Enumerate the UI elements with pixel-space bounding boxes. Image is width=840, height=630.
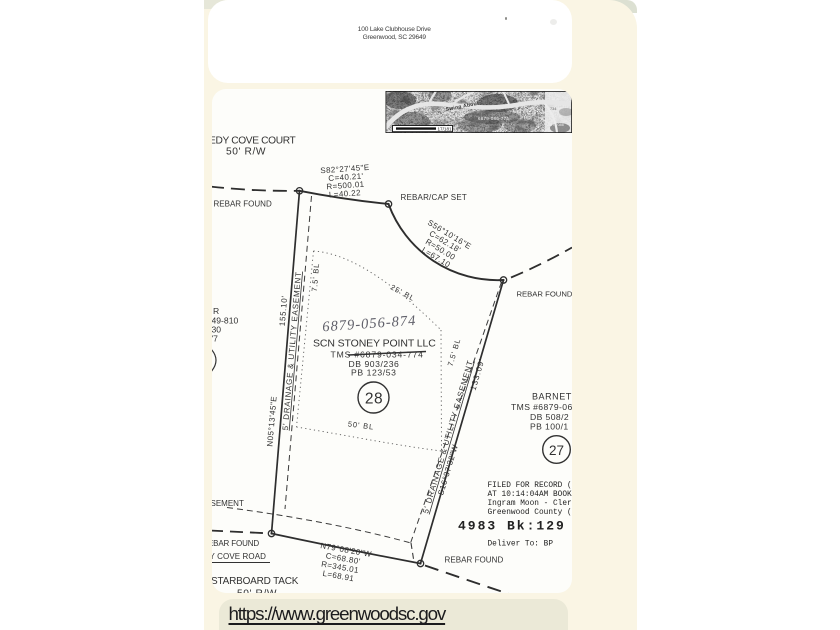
svg-text:TMS #6879-06: TMS #6879-06: [511, 402, 572, 412]
svg-text:REBAR/CAP SET: REBAR/CAP SET: [401, 193, 467, 202]
svg-text:27: 27: [549, 443, 564, 458]
svg-text:155.10': 155.10': [278, 295, 290, 327]
svg-text:50' BL: 50' BL: [347, 419, 374, 431]
svg-text:17/181: 17/181: [438, 127, 452, 132]
svg-text:N05°13'45"E: N05°13'45"E: [265, 396, 278, 447]
svg-text:7.5' BL: 7.5' BL: [446, 337, 463, 367]
svg-text:5' DRAINAGE & UTILITY EASEMENT: 5' DRAINAGE & UTILITY EASEMENT: [281, 271, 303, 431]
svg-text:SCN STONEY POINT LLC: SCN STONEY POINT LLC: [313, 338, 436, 350]
svg-text:'7: '7: [212, 334, 218, 344]
svg-text:7.5' BL: 7.5' BL: [310, 263, 321, 292]
svg-text:BARNETT: BARNETT: [532, 392, 572, 402]
svg-text:FILED FOR RECORD (: FILED FOR RECORD (: [488, 482, 572, 490]
svg-text:EBAR FOUND: EBAR FOUND: [212, 539, 259, 548]
svg-text:141 ST: 141 ST: [510, 93, 523, 97]
svg-text:REBAR FOUND: REBAR FOUND: [445, 556, 504, 565]
svg-text:25' BL: 25' BL: [389, 283, 417, 303]
svg-text:6879 086: 6879 086: [548, 123, 564, 127]
svg-text:R: R: [213, 306, 219, 316]
svg-text:Ingram Moon - Cler: Ingram Moon - Cler: [488, 500, 572, 508]
svg-text:6879-086-774: 6879-086-774: [478, 116, 509, 121]
svg-text:Greenwood County (: Greenwood County (: [488, 509, 572, 517]
svg-text:50' R/W: 50' R/W: [237, 589, 277, 594]
svg-text:SEMENT: SEMENT: [212, 499, 244, 508]
svg-text:AT 10:14:04AM BOOK: AT 10:14:04AM BOOK: [488, 491, 573, 499]
svg-text:734: 734: [550, 107, 556, 111]
svg-text:PB 100/1: PB 100/1: [530, 422, 569, 432]
svg-text:REBAR FOUND: REBAR FOUND: [517, 290, 573, 299]
svg-text:STARBOARD TACK: STARBOARD TACK: [212, 576, 299, 587]
svg-text:REBAR FOUND: REBAR FOUND: [214, 200, 272, 209]
svg-text:Y COVE ROAD: Y COVE ROAD: [212, 552, 266, 561]
svg-text:PB 123/53: PB 123/53: [351, 368, 397, 378]
svg-text:L=40.22: L=40.22: [329, 188, 362, 199]
svg-text:Deliver To: BP: Deliver To: BP: [488, 541, 554, 549]
svg-text:6879-056-874: 6879-056-874: [322, 313, 417, 336]
svg-text:28: 28: [365, 391, 383, 408]
svg-text:EDY COVE COURT: EDY COVE COURT: [212, 136, 296, 147]
svg-text:50' R/W: 50' R/W: [226, 147, 266, 158]
svg-text:DB 508/2: DB 508/2: [530, 412, 569, 422]
svg-text:5' DRAINAGE & UTILITY EASEMENT: 5' DRAINAGE & UTILITY EASEMENT: [421, 359, 475, 515]
svg-text:4983 Bk:129: 4983 Bk:129: [458, 519, 566, 534]
